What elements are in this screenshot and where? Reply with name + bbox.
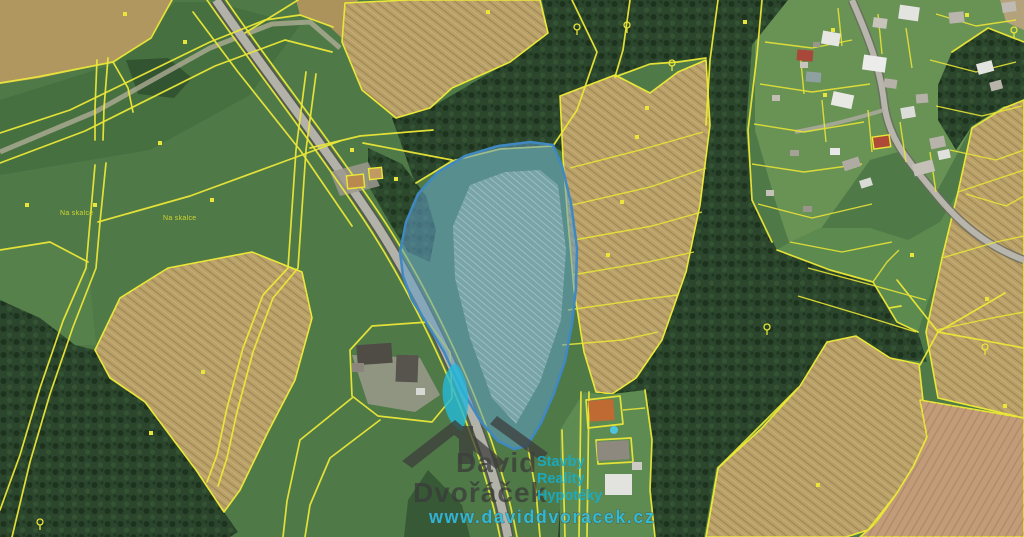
place-label-na-skalce-1: Na skalce [60,210,93,217]
watermark-first-name: David [456,447,537,478]
watermark-service-2: Reality [537,471,585,487]
pool [610,426,618,434]
watermark-last-name: Dvořáček [413,477,547,508]
place-label-na-skalce-2: Na skalce [163,215,196,222]
watermark-service-1: Stavby [537,454,585,470]
watermark-website: www.daviddvoracek.cz [428,507,655,527]
aerial-map[interactable]: Na skalce Na skalce David Dvořáček Stavb… [0,0,1024,537]
watermark-service-3: Hypotéky [537,488,602,504]
map-viewport[interactable]: Na skalce Na skalce David Dvořáček Stavb… [0,0,1024,537]
